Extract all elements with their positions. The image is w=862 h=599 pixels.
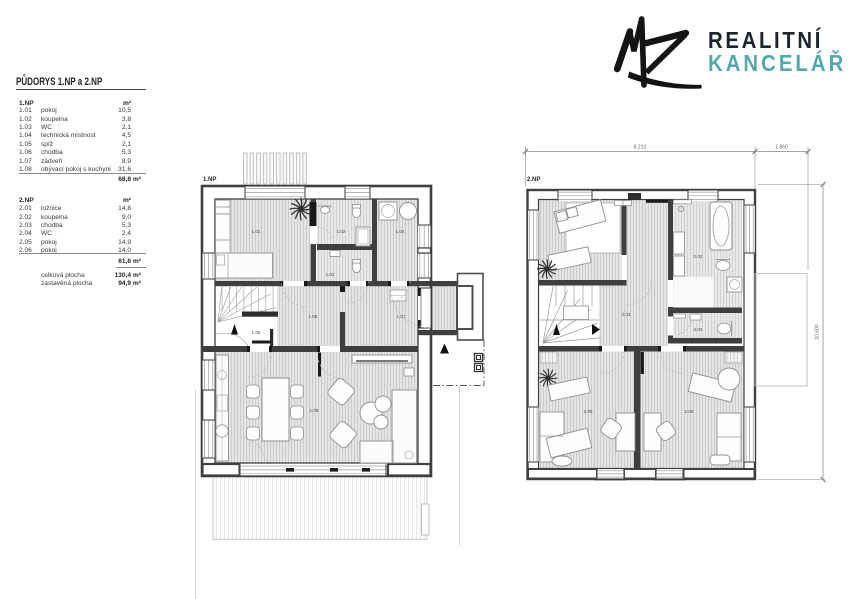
svg-text:2.03: 2.03 xyxy=(622,312,631,317)
svg-text:2.06: 2.06 xyxy=(685,409,694,414)
svg-text:1.01: 1.01 xyxy=(252,229,261,234)
svg-text:1.02: 1.02 xyxy=(337,229,346,234)
svg-text:2.05: 2.05 xyxy=(584,409,593,414)
svg-text:1.05: 1.05 xyxy=(252,330,261,335)
svg-text:1.08: 1.08 xyxy=(310,408,319,413)
svg-text:1.06: 1.06 xyxy=(309,314,318,319)
svg-text:10.600: 10.600 xyxy=(815,324,821,340)
svg-text:2.02: 2.02 xyxy=(694,254,703,259)
svg-text:1.860: 1.860 xyxy=(775,145,788,151)
svg-text:2.NP: 2.NP xyxy=(527,177,540,183)
svg-text:1.04: 1.04 xyxy=(396,229,405,234)
svg-text:8.210: 8.210 xyxy=(634,145,647,151)
svg-text:1.03: 1.03 xyxy=(326,272,335,277)
svg-text:1.NP: 1.NP xyxy=(203,177,216,183)
svg-text:2.04: 2.04 xyxy=(694,327,703,332)
